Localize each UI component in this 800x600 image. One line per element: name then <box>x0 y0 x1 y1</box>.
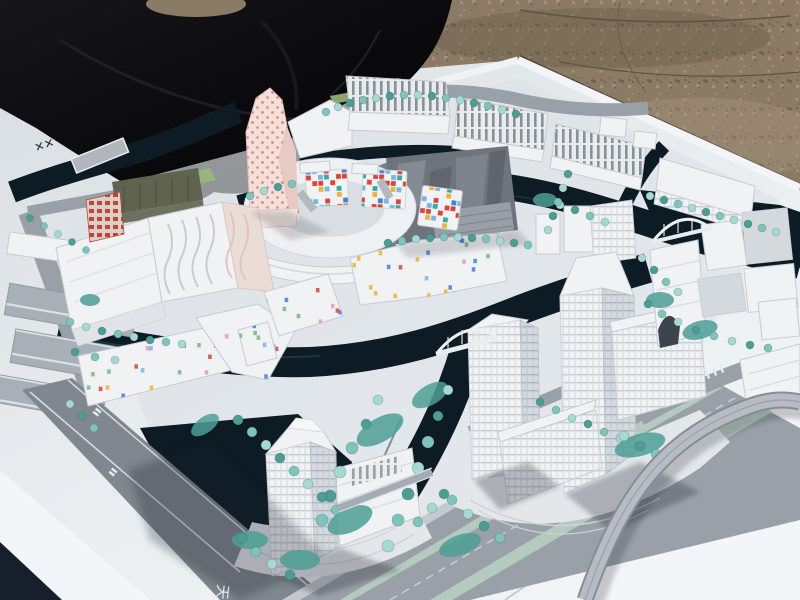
tree <box>83 247 90 254</box>
tree <box>413 517 423 527</box>
tree <box>260 187 268 195</box>
tree <box>660 196 668 204</box>
tree <box>600 428 608 436</box>
tree <box>334 466 346 478</box>
tree <box>454 233 462 241</box>
tree <box>470 99 478 107</box>
tree <box>468 234 476 242</box>
tree <box>433 411 443 421</box>
tree <box>512 110 520 118</box>
tree <box>247 427 257 437</box>
tree <box>82 323 90 331</box>
tree <box>728 337 736 345</box>
tree <box>386 92 394 100</box>
tree <box>428 92 436 100</box>
tree <box>288 180 296 188</box>
tree <box>688 204 696 212</box>
tree <box>275 453 285 463</box>
tree <box>78 412 86 420</box>
tree <box>384 239 392 247</box>
tree <box>289 466 299 476</box>
tree <box>237 533 247 543</box>
tree <box>412 235 420 243</box>
road-stamp-glyph: 天 <box>212 584 231 600</box>
tree <box>443 385 453 395</box>
tree <box>233 415 243 425</box>
tree <box>554 198 562 206</box>
tree <box>66 400 74 408</box>
tree <box>730 216 738 224</box>
tree <box>322 108 330 116</box>
tree <box>746 341 754 349</box>
tree <box>359 96 367 104</box>
tree <box>246 192 254 200</box>
tree <box>303 479 313 489</box>
tree <box>427 503 437 513</box>
tree <box>638 254 646 262</box>
tree <box>662 278 670 286</box>
tree <box>426 234 434 242</box>
tree <box>674 288 682 296</box>
tree <box>91 353 99 361</box>
tree <box>764 344 772 352</box>
tree <box>422 436 434 448</box>
tree <box>586 212 594 220</box>
tree <box>544 226 552 234</box>
tree <box>111 356 119 364</box>
tree <box>69 239 76 246</box>
tree <box>479 521 489 531</box>
tree <box>601 218 609 226</box>
tree <box>440 233 448 241</box>
tree <box>619 431 629 441</box>
tree <box>549 212 557 220</box>
tree <box>498 106 506 114</box>
tree <box>316 514 328 526</box>
tree <box>635 441 645 451</box>
tree <box>744 220 752 228</box>
tree <box>98 327 106 335</box>
tree <box>346 99 354 107</box>
mosaic-panel <box>417 185 462 230</box>
tree <box>66 318 74 326</box>
tree <box>716 212 724 220</box>
tree <box>674 200 682 208</box>
architectural-model-photo: ✕✕ 〓 〓 天 <box>0 0 800 600</box>
tree <box>510 239 518 247</box>
tree <box>552 406 560 414</box>
tree <box>402 488 414 500</box>
tree <box>646 192 654 200</box>
tree <box>536 398 544 406</box>
red-window-facade <box>86 192 124 242</box>
tree <box>361 419 371 429</box>
tree <box>571 206 579 214</box>
tree <box>495 533 505 543</box>
tree <box>692 326 700 334</box>
tree <box>285 570 295 580</box>
tree <box>392 514 404 526</box>
tree <box>55 231 62 238</box>
tree <box>674 318 682 326</box>
tree <box>442 94 450 102</box>
tree <box>334 103 342 111</box>
tree <box>650 266 658 274</box>
tree <box>251 547 261 557</box>
tree <box>178 340 186 348</box>
tree <box>41 223 48 230</box>
tree <box>373 395 383 405</box>
tree <box>559 184 567 192</box>
tree <box>644 300 652 308</box>
tree <box>414 91 422 99</box>
tree <box>27 215 34 222</box>
tree <box>162 338 170 346</box>
tree <box>114 330 122 338</box>
tree <box>346 442 358 454</box>
tree <box>90 424 98 432</box>
tree <box>398 237 406 245</box>
tree <box>71 348 79 356</box>
tree <box>274 183 282 191</box>
tree <box>146 336 154 344</box>
model-scene: ✕✕ 〓 〓 天 <box>0 0 800 600</box>
tree <box>702 208 710 216</box>
tree <box>524 241 532 249</box>
tree <box>317 492 327 502</box>
tree <box>447 495 457 505</box>
tree <box>261 440 271 450</box>
tree <box>658 310 666 318</box>
tree <box>484 102 492 110</box>
tree <box>456 96 464 104</box>
tree <box>400 91 408 99</box>
tree <box>463 509 473 519</box>
tree <box>496 237 504 245</box>
tree <box>130 333 138 341</box>
tree <box>772 228 780 236</box>
tree <box>482 235 490 243</box>
tree <box>584 420 592 428</box>
tree <box>758 224 766 232</box>
tree <box>267 559 277 569</box>
tree <box>382 540 394 552</box>
tree <box>568 414 576 422</box>
tree <box>564 170 572 178</box>
tree <box>710 332 718 340</box>
tree <box>372 94 380 102</box>
